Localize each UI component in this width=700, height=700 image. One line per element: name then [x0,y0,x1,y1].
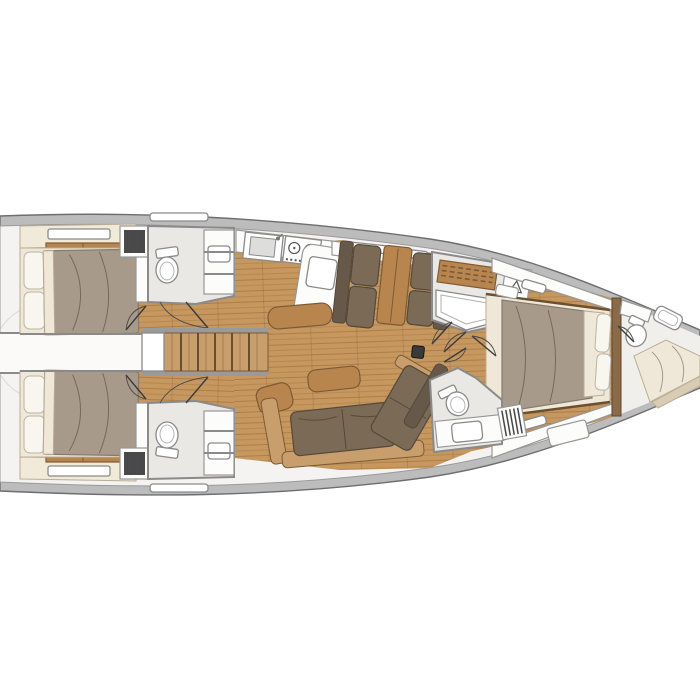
forward-bulkhead [612,298,621,416]
yacht-floor-plan-canvas [0,0,700,700]
floor-plan-drawing [0,0,700,700]
companionway-stairs [142,328,268,376]
vent-grille-icon [497,404,526,440]
pillow [595,354,611,391]
engine-hatch [142,333,164,371]
coffee-table [307,365,361,392]
toilet-icon [156,247,179,283]
aft-suite-starboard [20,370,234,492]
deck-hatch [150,213,208,221]
window-hatch-icon [48,229,110,239]
pillow [595,314,612,353]
aft-bed-duvet [43,249,138,335]
mast-post-icon [411,345,424,358]
duvet-fold [43,251,54,335]
aft-suite-port [20,213,234,335]
galley-bench [267,302,333,329]
sink-icon [243,230,284,262]
owner-bed-duvet [502,300,592,412]
dinette-seat [346,286,377,329]
sink-icon [451,421,483,443]
pillow [24,292,45,329]
sink-icon [208,246,230,262]
pillow [24,252,45,289]
stern-corridor [0,333,164,373]
dinette-seat [350,244,381,287]
